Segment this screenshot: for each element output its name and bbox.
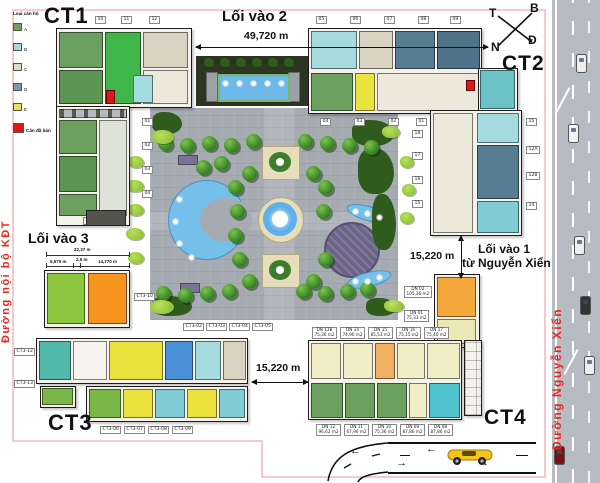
unit <box>311 73 353 111</box>
crescent-pool-cutout <box>200 198 252 242</box>
pool-light <box>376 274 383 281</box>
unit <box>311 343 341 379</box>
car-icon <box>576 54 587 73</box>
unit <box>395 31 435 69</box>
unit <box>477 113 519 143</box>
tree <box>214 156 229 171</box>
unit <box>59 156 97 192</box>
hedge <box>358 148 394 194</box>
unit-label-chip: DN 02 105,26 m2 <box>404 286 432 298</box>
legend-label: A <box>24 27 27 32</box>
unit-label-chip: 02 <box>388 118 399 126</box>
unit <box>223 341 246 380</box>
tree <box>178 288 193 303</box>
unit-label-chip: 12 <box>149 16 160 24</box>
unit <box>195 341 221 380</box>
hedge <box>284 58 294 67</box>
fountain-jet <box>272 211 288 227</box>
legend-label: D <box>24 87 27 92</box>
legend-item: B <box>13 38 65 56</box>
unit <box>427 343 460 379</box>
unit-label-chip: 15 <box>526 118 537 126</box>
dim-arrow-bottom <box>252 382 308 383</box>
tree <box>230 204 245 219</box>
unit-area: 85,53 m2 <box>371 333 391 338</box>
unit-label-chip: 10 <box>95 16 106 24</box>
pool-light <box>222 80 229 87</box>
unit-label-chip: DN 09 87,86 m2 <box>400 424 425 436</box>
unit-label-chip: 07 <box>384 16 395 24</box>
tree <box>342 138 357 153</box>
unit-label-chip: 04 <box>142 190 153 198</box>
tree <box>306 274 321 289</box>
bush <box>150 300 174 314</box>
car-icon <box>574 236 585 255</box>
dim-tick <box>73 263 74 268</box>
bush <box>400 212 414 224</box>
compass-west: T <box>489 6 496 20</box>
ct4-core <box>464 340 482 416</box>
ct3-building-upper <box>44 270 130 328</box>
tree <box>196 160 211 175</box>
hedge <box>220 58 230 67</box>
unit <box>311 31 357 69</box>
tree <box>318 180 333 195</box>
pool-light <box>278 80 285 87</box>
traffic-arrow-right: → <box>396 458 407 469</box>
sold-unit-marker <box>106 90 115 104</box>
dim-ct3-a: 5,570 m <box>50 259 67 264</box>
compass-east: Đ <box>528 33 537 47</box>
tree <box>242 166 257 181</box>
legend-title: Loại căn hộ <box>13 11 65 16</box>
ct2-building-wing <box>430 110 522 236</box>
unit-label-chip: CT3-06 <box>100 426 121 434</box>
unit-label-chip: DN 15 85,53 m2 <box>368 327 393 339</box>
tree <box>320 136 335 151</box>
unit-label-chip: 06 <box>350 16 361 24</box>
tree <box>228 180 243 195</box>
pool-light <box>176 196 183 203</box>
legend: Loại căn hộ A B C D E Căn đã bán <box>13 11 65 137</box>
unit-area: 74,90 m2 <box>343 333 363 338</box>
dim-arrow-top <box>196 47 488 48</box>
dim-bottom-gap: 15,220 m <box>256 362 300 374</box>
legend-swatch <box>13 83 22 91</box>
legend-swatch <box>13 23 22 31</box>
bush <box>384 300 404 312</box>
car-icon <box>580 296 591 315</box>
dim-ct3-c: 14,770 m <box>98 259 117 264</box>
tree <box>298 134 313 149</box>
unit <box>109 341 163 380</box>
unit <box>123 389 153 418</box>
unit-label-chip: 08 <box>418 16 429 24</box>
unit-area: 105,26 m2 <box>407 292 430 297</box>
unit-label-chip: 12B <box>526 172 540 180</box>
pergola <box>178 155 198 165</box>
unit-label-chip: 18 <box>412 130 423 138</box>
unit-label-chip: CT3-12 <box>14 348 35 356</box>
traffic-arrow-left: ← <box>350 446 361 457</box>
site-plan: Loại căn hộ A B C D E Căn đã bán Đường n… <box>0 0 600 483</box>
unit-area: 75,36 m2 <box>315 333 335 338</box>
corridor <box>59 109 127 118</box>
dim-tick <box>46 252 47 257</box>
car-icon <box>568 124 579 143</box>
pool-light <box>250 80 257 87</box>
unit <box>47 273 85 324</box>
tree <box>364 140 379 155</box>
unit-label-chip: 17 <box>412 152 423 160</box>
garden-dot <box>276 266 284 274</box>
ct3-building-row2 <box>86 386 248 422</box>
pool-light <box>352 208 359 215</box>
tree <box>180 138 195 153</box>
dim-tick <box>80 263 81 268</box>
unit <box>477 145 519 199</box>
unit-label-chip: DN 12 96,62 m2 <box>316 424 341 436</box>
merge-mark <box>564 349 579 375</box>
entrance-pool <box>218 74 290 102</box>
road-edge <box>388 442 536 444</box>
traffic-arrow-right: → <box>478 458 489 469</box>
bush <box>382 126 400 138</box>
legend-item: D <box>13 78 65 96</box>
unit-area: 75,33 m2 <box>407 316 427 321</box>
unit-area: 96,62 m2 <box>319 430 339 435</box>
unit-label-chip: CT3-05 <box>252 323 273 331</box>
dim-top-width: 49,720 m <box>244 30 288 42</box>
pool-light <box>236 80 243 87</box>
unit <box>143 32 188 68</box>
unit <box>437 31 480 69</box>
hedge <box>252 58 262 67</box>
tree <box>306 166 321 181</box>
legend-swatch <box>13 43 22 51</box>
unit-label-chip: DN 10 75,36 m2 <box>372 424 397 436</box>
unit-area: 87,86 m2 <box>403 430 423 435</box>
garden-dot <box>276 158 284 166</box>
unit <box>343 343 373 379</box>
dim-tick <box>46 263 47 268</box>
unit <box>377 73 480 111</box>
ct1-building-wing <box>56 106 130 226</box>
pool-light <box>188 254 195 261</box>
unit-label-chip: CT3-10 <box>134 293 155 301</box>
dim-tick <box>129 252 130 257</box>
tree <box>318 252 333 267</box>
legend-item: A <box>13 18 65 36</box>
bush <box>152 130 174 144</box>
unit-label-chip: DN 12B 75,36 m2 <box>312 327 337 339</box>
unit-label-chip: DN 14 74,90 m2 <box>340 327 365 339</box>
pool-light <box>352 278 359 285</box>
dim-ct3-total: 22,37 m <box>74 247 91 252</box>
unit-label-chip: DN 01 75,33 m2 <box>404 310 429 322</box>
unit <box>89 389 121 418</box>
unit-label-chip: 16 <box>412 176 423 184</box>
unit-label-chip: CT3-03 <box>206 323 227 331</box>
unit <box>59 32 103 68</box>
unit-label-chip: 02 <box>142 142 153 150</box>
bush <box>128 204 144 216</box>
dim-right-gap: 15,220 m <box>410 250 454 262</box>
legend-swatch <box>13 103 22 111</box>
unit <box>133 75 153 103</box>
entrance-3-label: Lối vào 3 <box>28 230 89 246</box>
unit <box>165 341 193 380</box>
ct2-building-top <box>308 28 482 114</box>
unit-label-chip: 14 <box>526 202 537 210</box>
pool-light <box>176 240 183 247</box>
tree <box>340 284 355 299</box>
tree <box>202 136 217 151</box>
pool-light <box>364 210 371 217</box>
pool-light <box>376 214 383 221</box>
unit-label-chip: 05 <box>316 16 327 24</box>
unit <box>88 273 127 324</box>
unit-label-chip: CT3-09 <box>172 426 193 434</box>
tree <box>224 138 239 153</box>
unit-label-chip: 04 <box>320 118 331 126</box>
unit-label-chip: CT3-13 <box>14 380 35 388</box>
tree <box>200 286 215 301</box>
legend-item: C <box>13 58 65 76</box>
unit <box>437 277 476 317</box>
ct2-label: CT2 <box>502 52 545 76</box>
unit <box>99 120 127 216</box>
ct4-label: CT4 <box>484 406 527 430</box>
unit-label-chip: 09 <box>450 16 461 24</box>
legend-label: C <box>24 67 27 72</box>
unit <box>397 343 425 379</box>
unit <box>409 383 427 418</box>
ct3-building-row1 <box>36 338 248 384</box>
hedge <box>268 58 278 67</box>
unit-label-chip: 15 <box>412 200 423 208</box>
unit <box>355 73 375 111</box>
unit-label-chip: 12A <box>526 146 540 154</box>
legend-label: E <box>24 107 27 112</box>
unit <box>59 70 103 104</box>
entrance-1-label2: từ Nguyễn Xiển <box>462 256 551 270</box>
entrance-1-label: Lối vào 1 <box>478 242 530 256</box>
legend-item: Căn đã bán <box>13 119 65 137</box>
legend-swatch <box>13 63 22 71</box>
dim-tick <box>129 263 130 268</box>
unit-area: 75,40 m2 <box>427 333 447 338</box>
ct3-label: CT3 <box>48 410 93 436</box>
unit <box>429 383 460 418</box>
unit-label-chip: 11 <box>121 16 132 24</box>
tree <box>318 286 333 301</box>
unit-label-chip: DN 17 75,40 m2 <box>424 327 449 339</box>
bush <box>126 228 144 240</box>
entrance-pillar <box>206 72 218 102</box>
unit <box>73 341 107 380</box>
ct1-building-top <box>56 28 192 108</box>
unit-area: 75,36 m2 <box>375 430 395 435</box>
garden-square-top <box>262 146 300 180</box>
pool-light <box>264 80 271 87</box>
ct1-roof-block <box>86 210 126 226</box>
legend-label: Căn đã bán <box>26 128 51 133</box>
unit <box>433 113 473 233</box>
unit-label-chip: 03 <box>142 166 153 174</box>
street-internal-label: Đường nội bộ KĐT <box>0 168 12 343</box>
legend-swatch-sold <box>13 123 24 133</box>
street-main-label: Đường Nguyễn Xiển <box>550 200 564 450</box>
tree <box>156 286 171 301</box>
unit-area: 75,15 m2 <box>399 333 419 338</box>
legend-item: E <box>13 98 65 116</box>
unit <box>377 383 407 418</box>
road-edge <box>388 472 536 474</box>
bush <box>128 252 144 264</box>
unit-label-chip: CT3-07 <box>124 426 145 434</box>
compass-north: B <box>530 1 539 15</box>
dim-line <box>46 255 130 256</box>
unit-label-chip: CT3-04 <box>229 323 250 331</box>
unit <box>311 383 343 418</box>
unit-label-chip: CT3-02 <box>183 323 204 331</box>
bush <box>402 184 416 196</box>
unit <box>345 383 375 418</box>
unit-area: 87,86 m2 <box>431 430 451 435</box>
unit-label-chip: 03 <box>354 118 365 126</box>
unit <box>39 341 71 380</box>
pool-light <box>172 218 179 225</box>
entrance-2-label: Lối vào 2 <box>222 8 287 25</box>
unit-label-chip: 01 <box>416 118 427 126</box>
unit <box>375 343 395 379</box>
unit-area: 67,96 m2 <box>347 430 367 435</box>
unit-label-chip: DN 16 75,15 m2 <box>396 327 421 339</box>
lane-dashes <box>588 0 590 483</box>
unit-label-chip: DN 08 87,86 m2 <box>428 424 453 436</box>
tree <box>222 284 237 299</box>
traffic-arrow-left: ← <box>426 444 437 455</box>
car-icon <box>584 356 595 375</box>
lane-dash <box>516 455 528 456</box>
unit <box>42 388 73 405</box>
unit <box>219 389 245 418</box>
hedge <box>204 58 214 67</box>
unit-label-chip: DN 11 67,96 m2 <box>344 424 369 436</box>
unit <box>477 201 519 233</box>
pool-light <box>364 278 371 285</box>
ct4-building-main <box>308 340 462 420</box>
tree <box>228 228 243 243</box>
unit-label-chip: 01 <box>142 118 153 126</box>
garden-square-bottom <box>262 254 300 288</box>
tree <box>232 252 247 267</box>
unit <box>359 31 393 69</box>
dim-ct3-b: 2,5 m <box>76 257 88 262</box>
dim-line <box>46 266 130 267</box>
tree <box>316 204 331 219</box>
tree <box>246 134 261 149</box>
tree <box>242 274 257 289</box>
unit <box>155 389 185 418</box>
sold-unit-marker <box>466 80 475 91</box>
legend-label: B <box>24 47 27 52</box>
ct3-building-left-low <box>40 386 76 408</box>
unit <box>187 389 217 418</box>
compass-south: N <box>491 40 500 54</box>
hedge <box>236 58 246 67</box>
merge-mark <box>556 87 571 113</box>
unit-label-chip: CT3-08 <box>148 426 169 434</box>
